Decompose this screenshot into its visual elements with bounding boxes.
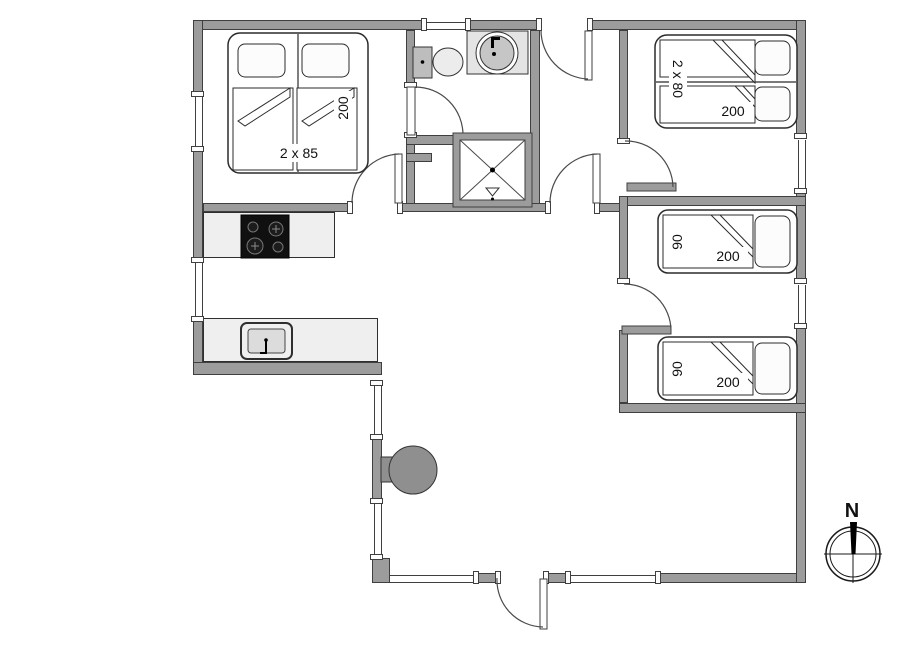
door-leaf bbox=[593, 154, 600, 203]
pillow bbox=[302, 44, 349, 77]
shower-head-dot bbox=[491, 198, 494, 201]
furniture-layer bbox=[0, 0, 907, 667]
bed-length-label: 200 bbox=[708, 247, 748, 264]
toilet bbox=[413, 47, 463, 78]
burner bbox=[273, 242, 283, 252]
shower bbox=[453, 133, 532, 207]
cooktop-surface bbox=[241, 215, 289, 258]
washbasin-bowl bbox=[480, 36, 514, 70]
pillow bbox=[755, 87, 790, 121]
faucet-icon bbox=[491, 37, 500, 40]
bed-length-label: 200 bbox=[708, 373, 748, 390]
door-leaf bbox=[540, 579, 547, 629]
door-leaf bbox=[622, 326, 671, 334]
toilet-bowl bbox=[433, 48, 463, 76]
bed-length-label: 200 bbox=[334, 91, 352, 125]
drain-dot bbox=[492, 52, 496, 56]
compass-rose bbox=[824, 522, 882, 583]
door-arc bbox=[541, 30, 588, 79]
toilet-button bbox=[421, 60, 425, 64]
bed-width-label: 90 bbox=[669, 229, 685, 255]
bed-width-label: 90 bbox=[669, 356, 685, 382]
pillow bbox=[755, 343, 790, 394]
door-arc bbox=[624, 284, 671, 330]
door-entrance-top bbox=[541, 30, 592, 80]
sink-faucet-dot bbox=[264, 338, 268, 342]
cooktop bbox=[241, 215, 289, 258]
pillow bbox=[238, 44, 285, 77]
pillow bbox=[755, 41, 790, 75]
wood-stove bbox=[381, 446, 437, 494]
door-entrance-bottom bbox=[497, 578, 547, 629]
door-arc bbox=[550, 154, 597, 203]
washbasin bbox=[467, 31, 528, 74]
door-bedrooms-right bbox=[622, 284, 671, 334]
floor-plan: 200 2 x 85 2 x 80 200 90 200 90 200 N bbox=[0, 0, 907, 667]
pillow bbox=[755, 216, 790, 267]
kitchen-sink bbox=[241, 323, 292, 359]
door-bedroom-top-right bbox=[625, 141, 676, 191]
shower-drain bbox=[490, 168, 495, 173]
burner bbox=[248, 222, 258, 232]
bed-width-label: 2 x 80 bbox=[669, 55, 687, 103]
compass-north-label: N bbox=[840, 500, 864, 522]
bed-width-label: 2 x 85 bbox=[272, 144, 326, 162]
door-leaf bbox=[585, 31, 592, 80]
bed-length-label: 200 bbox=[713, 102, 753, 119]
door-arc bbox=[625, 141, 673, 187]
door-bathroom bbox=[407, 87, 463, 135]
door-leaf bbox=[395, 154, 402, 203]
door-leaf bbox=[627, 183, 676, 191]
door-hallway bbox=[550, 154, 600, 203]
door-arc bbox=[415, 87, 463, 135]
door-leaf bbox=[407, 87, 415, 135]
stove-body bbox=[389, 446, 437, 494]
door-arc bbox=[497, 578, 543, 627]
compass-needle bbox=[850, 522, 857, 554]
